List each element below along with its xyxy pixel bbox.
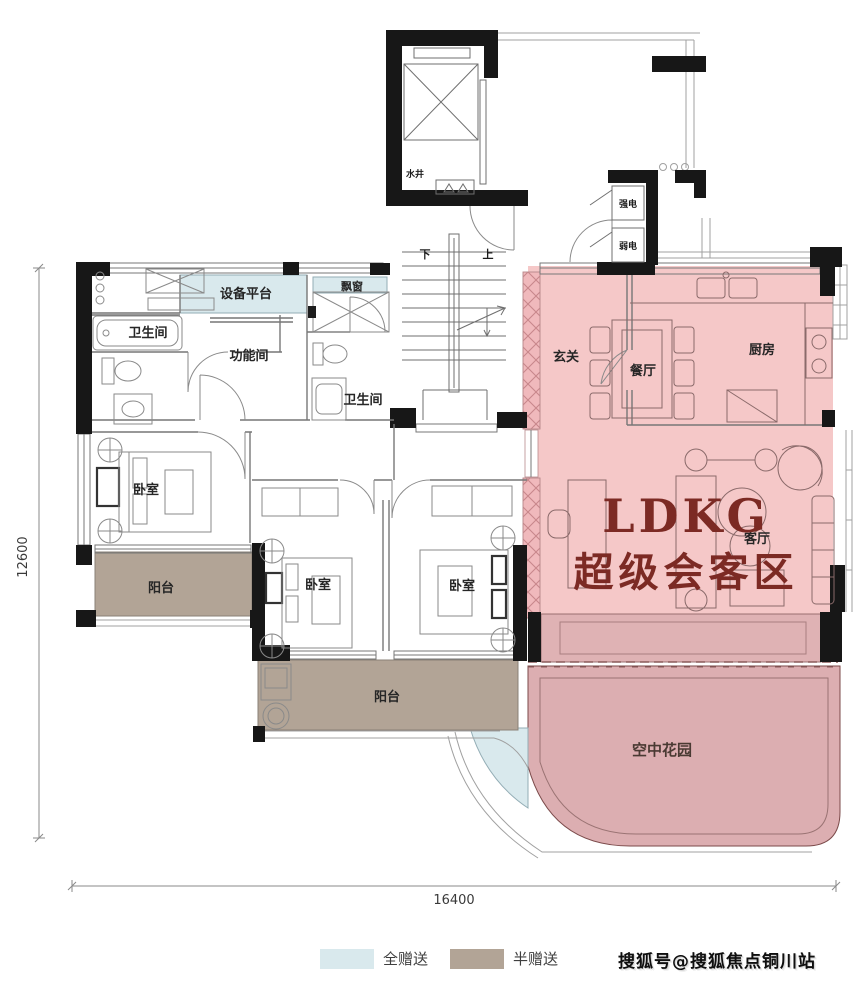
equipment-platform-label: 设备平台 bbox=[220, 286, 272, 302]
gift-balcony-strip bbox=[541, 614, 821, 662]
wardrobe-c bbox=[432, 486, 512, 516]
floorplan-drawing: 水井 下 上 强电 弱电 设备平台 飘窗 卫生间 功能间 卫生间 玄关 餐厅 厨… bbox=[0, 0, 862, 986]
width-dimension-label: 16400 bbox=[433, 893, 474, 908]
balcony-b-label: 阳台 bbox=[374, 689, 400, 705]
bathroom-a-label: 卫生间 bbox=[128, 325, 167, 341]
entry-label: 玄关 bbox=[553, 349, 579, 365]
stairs-up-label: 上 bbox=[483, 247, 494, 261]
vanity-b bbox=[312, 378, 346, 420]
function-room-label: 功能间 bbox=[229, 348, 268, 364]
weak-power-label: 弱电 bbox=[619, 240, 637, 252]
ldkg-subtitle-text: 超级会客区 bbox=[574, 549, 799, 596]
half-gift-swatch bbox=[450, 949, 504, 969]
full-gift-label: 全赠送 bbox=[383, 948, 428, 969]
bathroom-b-label: 卫生间 bbox=[343, 392, 382, 408]
kitchen-label: 厨房 bbox=[749, 342, 775, 358]
height-dimension-label: 12600 bbox=[16, 536, 31, 577]
fan-symbols bbox=[98, 438, 515, 658]
half-gift-label: 半赠送 bbox=[513, 948, 558, 969]
floorplan-page: 水井 下 上 强电 弱电 设备平台 飘窗 卫生间 功能间 卫生间 玄关 餐厅 厨… bbox=[0, 0, 862, 986]
legend-item-half-gift: 半赠送 bbox=[450, 948, 558, 969]
sky-garden-label: 空中花园 bbox=[632, 741, 692, 759]
wardrobe-b bbox=[262, 488, 338, 516]
dining-label: 餐厅 bbox=[629, 363, 656, 379]
toilet-a bbox=[102, 358, 141, 384]
full-gift-swatch bbox=[320, 949, 374, 969]
water-well-label: 水井 bbox=[406, 168, 424, 180]
watermark: 搜狐号@搜狐焦点铜川站 bbox=[618, 947, 858, 972]
stairs bbox=[402, 234, 506, 420]
ldkg-title-text: LDKG bbox=[602, 489, 770, 543]
stairs-down-label: 下 bbox=[420, 248, 431, 261]
bedroom-c-label: 卧室 bbox=[449, 578, 475, 594]
bay-window-label: 飘窗 bbox=[341, 279, 363, 293]
legend-item-full-gift: 全赠送 bbox=[320, 948, 428, 969]
bed-b bbox=[266, 558, 352, 648]
bedroom-b-label: 卧室 bbox=[305, 577, 331, 593]
bedroom-a-label: 卧室 bbox=[133, 482, 159, 498]
balcony-a-label: 阳台 bbox=[148, 580, 174, 596]
highlight-title: LDKG 超级会客区 bbox=[574, 489, 799, 596]
toilet-b bbox=[313, 343, 347, 365]
strong-power-label: 强电 bbox=[619, 198, 637, 210]
bay-window-seat bbox=[308, 292, 389, 332]
